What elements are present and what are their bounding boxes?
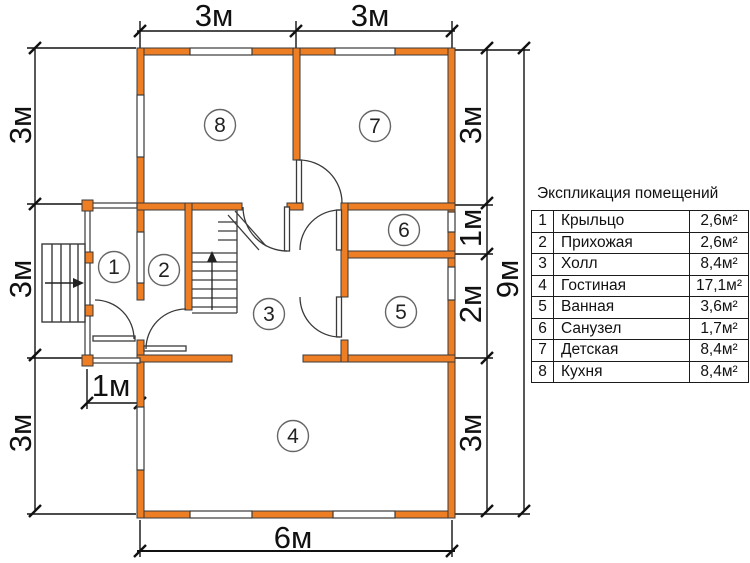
dim-right-4: 3м <box>453 414 488 453</box>
room-area: 3,6м² <box>690 297 749 319</box>
room-name: Прихожая <box>554 232 690 254</box>
door-kitchen <box>243 207 290 251</box>
dim-porch: 1м <box>92 368 131 403</box>
room-label-4: 4 <box>278 421 309 452</box>
room-area: 1,7м² <box>690 318 749 340</box>
room-number: 7 <box>532 340 554 362</box>
exterior-steps <box>42 244 85 322</box>
svg-text:5: 5 <box>395 301 407 324</box>
svg-text:1: 1 <box>108 256 120 279</box>
room-name: Кухня <box>554 361 690 383</box>
window-left-hallway <box>137 232 144 283</box>
window-bottom-left <box>190 511 252 518</box>
room-name: Гостиная <box>554 275 690 297</box>
svg-text:6: 6 <box>398 219 410 242</box>
table-row: 2 Прихожая 2,6м² <box>532 232 749 254</box>
window-top-childroom <box>335 48 395 55</box>
legend-table: 1 Крыльцо 2,6м² 2 Прихожая 2,6м² 3 Холл … <box>531 210 749 383</box>
room-area: 17,1м² <box>690 275 749 297</box>
door-bathroom <box>300 297 342 337</box>
room-label-6: 6 <box>389 215 420 246</box>
room-number: 1 <box>532 211 554 233</box>
room-area: 8,4м² <box>690 340 749 362</box>
room-number: 5 <box>532 297 554 319</box>
room-name: Холл <box>554 254 690 276</box>
room-number: 3 <box>532 254 554 276</box>
room-name: Ванная <box>554 297 690 319</box>
door-hallway <box>144 309 186 351</box>
table-row: 6 Санузел 1,7м² <box>532 318 749 340</box>
room-number: 8 <box>532 361 554 383</box>
staircase <box>192 210 266 313</box>
door-porch-entry <box>93 300 135 341</box>
floor-plan-page: 3м 3м 6м 3м 3м 3м 1м 3м 1м 2м 3м 9м <box>0 0 750 563</box>
room-label-5: 5 <box>386 297 417 328</box>
dim-top-1: 3м <box>195 0 234 33</box>
svg-text:2: 2 <box>158 259 170 282</box>
window-top-kitchen <box>190 48 252 55</box>
room-label-7: 7 <box>360 111 391 142</box>
window-right-wc <box>448 212 455 232</box>
window-bottom-right <box>333 511 395 518</box>
dim-left-1: 3м <box>3 106 38 145</box>
dim-top-2: 3м <box>351 0 390 33</box>
room-label-1: 1 <box>99 252 130 283</box>
room-name: Детская <box>554 340 690 362</box>
table-row: 4 Гостиная 17,1м² <box>532 275 749 297</box>
legend: Экспликация помещений 1 Крыльцо 2,6м² 2 … <box>531 185 746 383</box>
dim-bottom: 6м <box>274 520 313 555</box>
table-row: 5 Ванная 3,6м² <box>532 297 749 319</box>
room-number: 6 <box>532 318 554 340</box>
room-area: 8,4м² <box>690 361 749 383</box>
dim-left-3: 3м <box>3 414 38 453</box>
dim-right-3: 2м <box>453 285 488 324</box>
door-childroom <box>297 160 343 203</box>
porch-top-wall <box>90 203 137 208</box>
dim-right-2: 1м <box>453 209 488 248</box>
dim-right-1: 3м <box>453 106 488 145</box>
table-row: 7 Детская 8,4м² <box>532 340 749 362</box>
window-left-living <box>137 407 144 470</box>
room-label-8: 8 <box>205 110 236 141</box>
doors <box>93 160 342 351</box>
dim-left-2: 3м <box>3 260 38 299</box>
room-area: 2,6м² <box>690 232 749 254</box>
table-row: 3 Холл 8,4м² <box>532 254 749 276</box>
window-left-kitchen <box>137 95 144 157</box>
room-number: 2 <box>532 232 554 254</box>
room-name: Санузел <box>554 318 690 340</box>
room-labels: 1 2 3 4 5 6 7 8 <box>99 110 420 452</box>
dim-total-height: 9м <box>490 260 525 299</box>
room-label-2: 2 <box>149 255 180 286</box>
room-number: 4 <box>532 275 554 297</box>
door-wc <box>300 210 342 250</box>
room-area: 8,4м² <box>690 254 749 276</box>
window-right-bath <box>448 267 455 300</box>
legend-title: Экспликация помещений <box>537 185 746 203</box>
table-row: 8 Кухня 8,4м² <box>532 361 749 383</box>
svg-text:4: 4 <box>287 425 299 448</box>
room-area: 2,6м² <box>690 211 749 233</box>
room-name: Крыльцо <box>554 211 690 233</box>
svg-text:7: 7 <box>369 115 381 138</box>
table-row: 1 Крыльцо 2,6м² <box>532 211 749 233</box>
porch-left-wall <box>85 203 90 365</box>
svg-text:3: 3 <box>263 303 275 326</box>
svg-text:8: 8 <box>214 114 226 137</box>
room-label-3: 3 <box>254 299 285 330</box>
